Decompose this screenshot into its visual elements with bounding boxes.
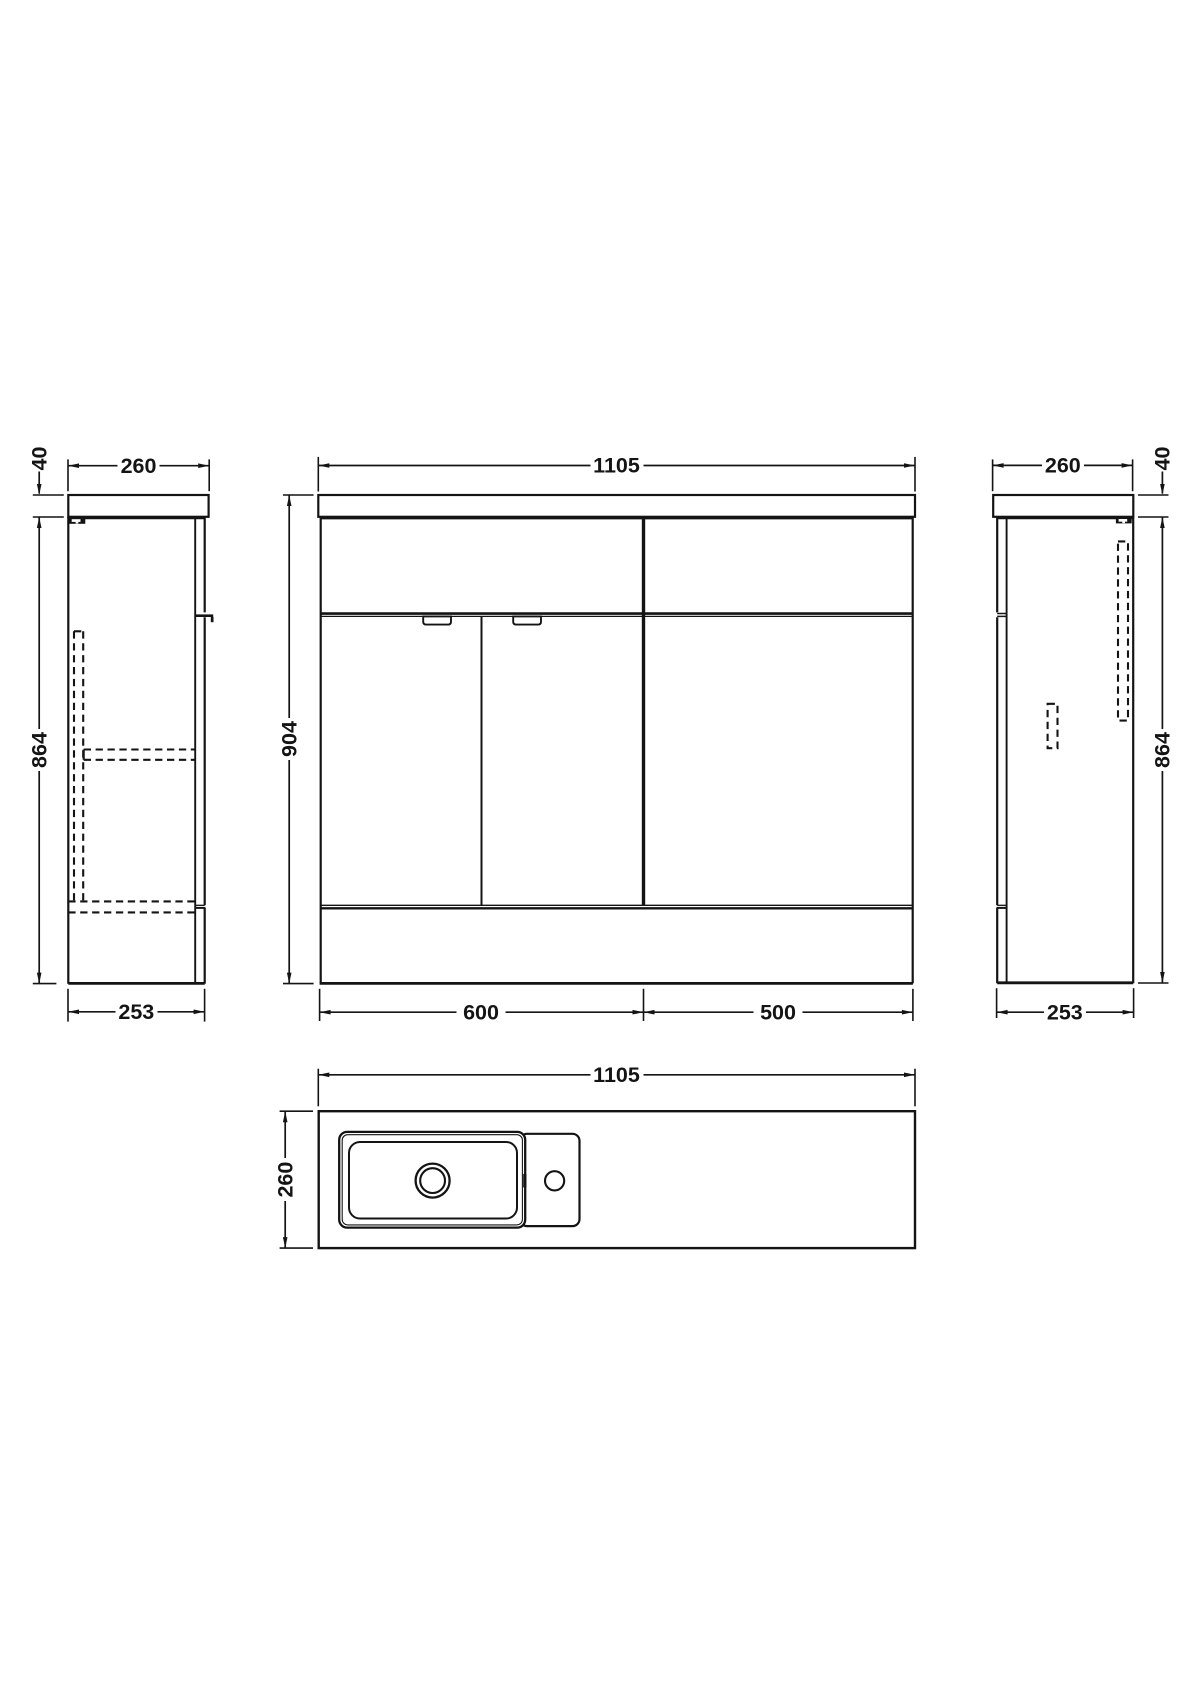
svg-text:253: 253 [118, 1000, 154, 1024]
svg-text:253: 253 [1047, 1000, 1083, 1024]
svg-text:600: 600 [463, 1000, 499, 1024]
svg-text:260: 260 [273, 1162, 297, 1198]
svg-text:1105: 1105 [593, 1063, 640, 1087]
svg-text:864: 864 [1151, 732, 1175, 768]
svg-text:1105: 1105 [593, 454, 640, 478]
svg-text:260: 260 [121, 454, 157, 478]
svg-text:40: 40 [28, 447, 52, 471]
svg-text:500: 500 [760, 1000, 796, 1024]
svg-text:864: 864 [27, 732, 51, 768]
svg-text:40: 40 [1151, 447, 1175, 471]
svg-text:260: 260 [1045, 454, 1081, 478]
svg-text:904: 904 [277, 721, 301, 757]
